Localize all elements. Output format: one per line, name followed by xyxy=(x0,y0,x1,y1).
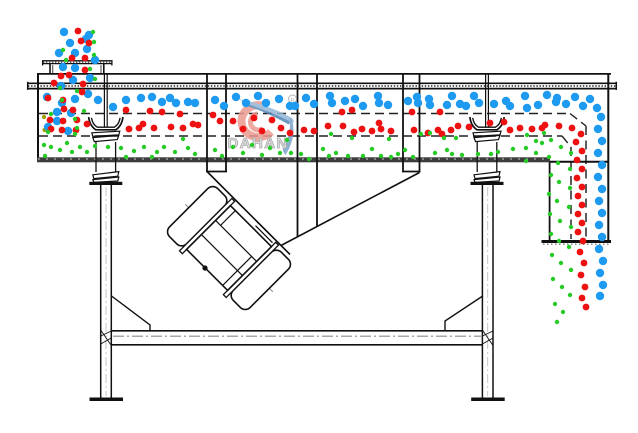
svg-text:DAHAN: DAHAN xyxy=(228,135,289,152)
